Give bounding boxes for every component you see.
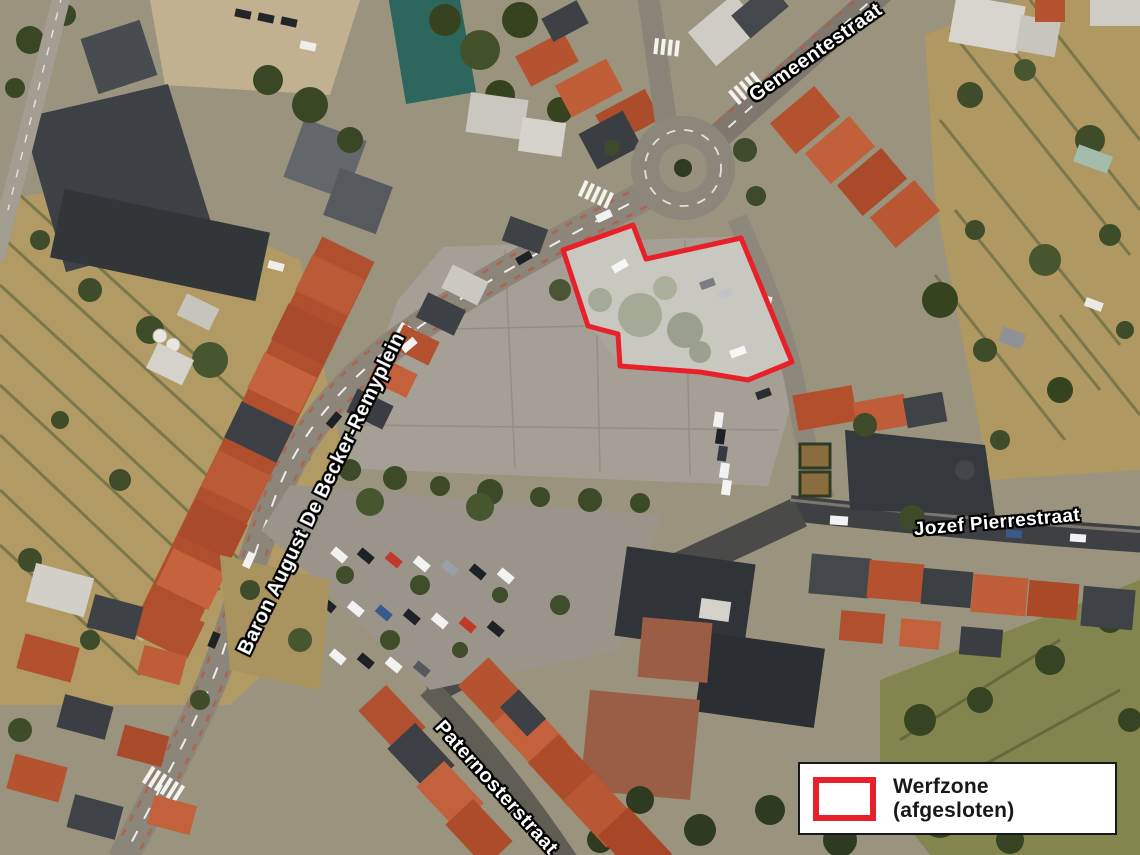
construction-zone-map-figure: Gemeentestraat Baron August De Becker-Re… bbox=[0, 0, 1140, 855]
legend: Werfzone (afgesloten) bbox=[798, 762, 1117, 835]
legend-label: Werfzone (afgesloten) bbox=[893, 775, 1115, 823]
satellite-map bbox=[0, 0, 1140, 855]
werfzone-swatch-icon bbox=[813, 777, 876, 821]
